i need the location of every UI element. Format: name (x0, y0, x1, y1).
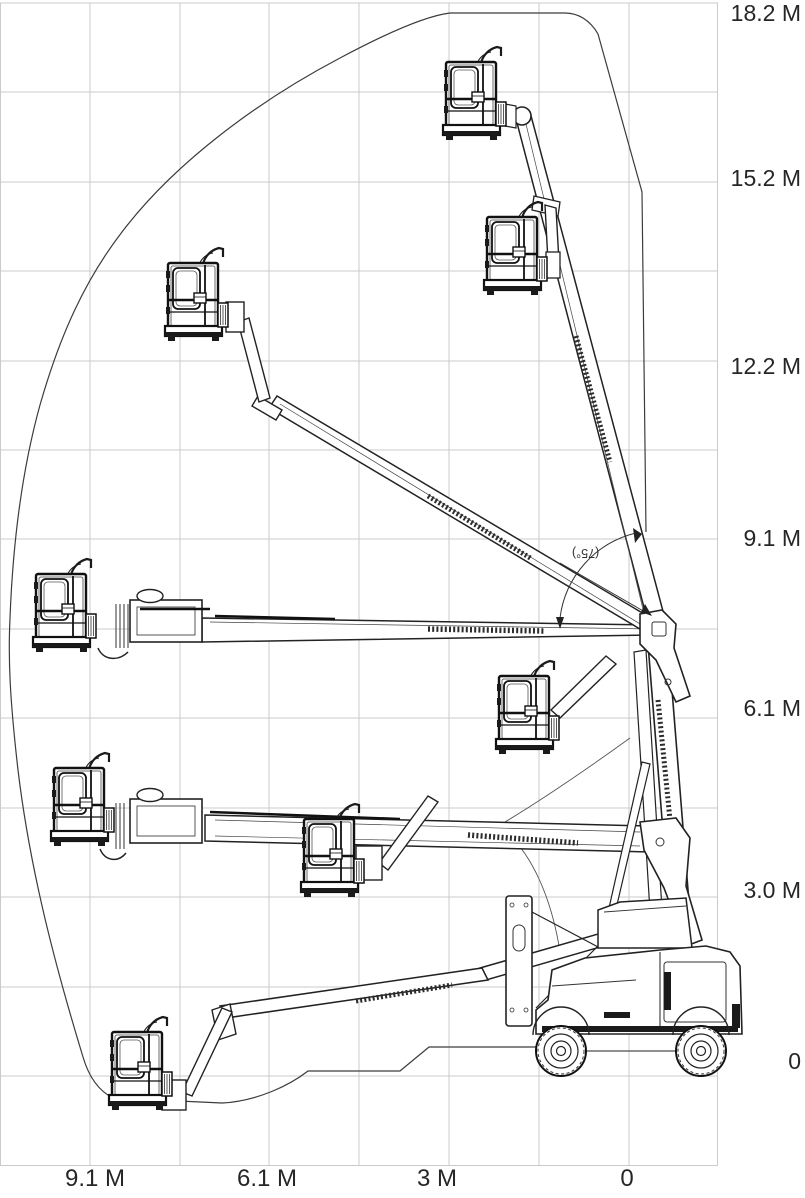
height-label-12-2: 12.2 M (731, 353, 801, 379)
height-label-9-1: 9.1 M (743, 525, 801, 551)
platform-basket-max-outreach (33, 559, 96, 652)
envelope-diagram: 18.2 M 15.2 M 12.2 M 9.1 M 6.1 M 3.0 M 0… (0, 0, 805, 1198)
platform-basket-tucked (496, 661, 559, 754)
front-wheel (536, 1026, 586, 1076)
platform-basket-raised-left (165, 248, 228, 341)
outreach-label-3: 3 M (417, 1166, 457, 1192)
height-label-0: 0 (788, 1048, 801, 1074)
platform-basket-mid-outreach (51, 753, 114, 846)
outreach-label-9-1: 9.1 M (65, 1166, 125, 1192)
height-label-15-2: 15.2 M (731, 165, 801, 191)
platform-basket-upper-right (484, 202, 547, 295)
boom-horizontal-lower (100, 789, 650, 881)
outreach-label-0: 0 (620, 1166, 633, 1192)
boom-angle-label: (75°) (572, 546, 599, 560)
rear-wheel (676, 1026, 726, 1076)
jib-link-basket5 (551, 656, 616, 718)
boom-raised-diagonal (226, 302, 666, 638)
outreach-label-6-1: 6.1 M (237, 1166, 297, 1192)
platform-basket-top (443, 47, 506, 140)
boom-horizontal-upper (98, 590, 655, 659)
diagram-canvas (0, 0, 805, 1198)
turntable (598, 898, 692, 948)
height-label-6-1: 6.1 M (743, 695, 801, 721)
height-label-3-0: 3.0 M (743, 877, 801, 903)
platform-basket-lowest (109, 1017, 172, 1110)
height-label-18-2: 18.2 M (731, 0, 801, 26)
envelope-outer-boundary (9, 13, 646, 1057)
